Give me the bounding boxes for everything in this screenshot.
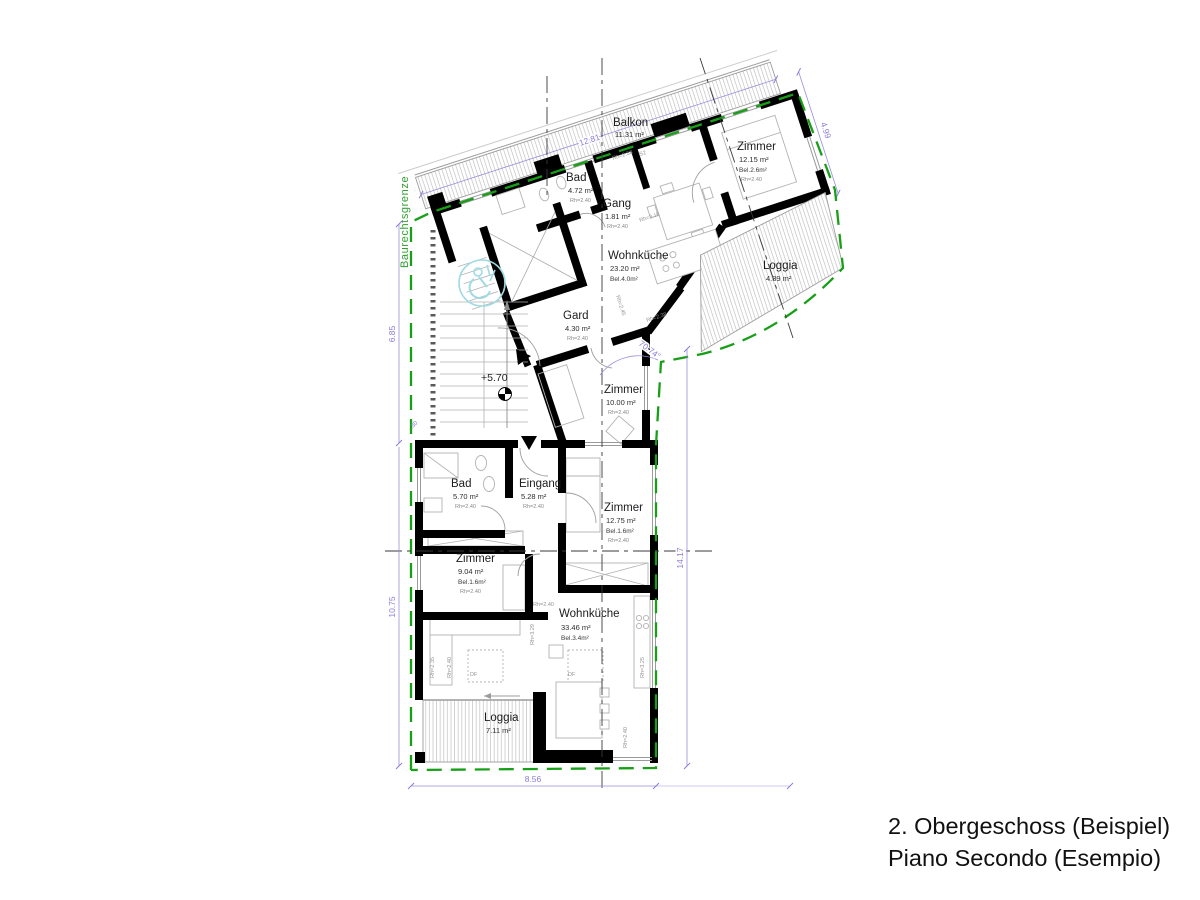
svg-text:4.39 m²: 4.39 m² (766, 274, 792, 283)
room-label-eingang: Eingang 5.28 m² Rh=2.40 (519, 478, 561, 510)
svg-text:Rh=2.40: Rh=2.40 (741, 177, 762, 183)
svg-text:4.72 m²: 4.72 m² (568, 186, 594, 195)
svg-text:DF: DF (470, 672, 478, 678)
svg-text:Rh=2.40: Rh=2.40 (447, 657, 453, 678)
room-label-zimmer-ost: Zimmer 12.75 m² Bel.1.6m² Rh=2.40 (604, 502, 643, 544)
room-label-gang: Gang 1.81 m² Rh=2.40 (603, 198, 631, 230)
svg-text:Rh=2.35: Rh=2.35 (430, 657, 436, 678)
svg-text:Wohnküche: Wohnküche (608, 250, 669, 262)
dim-wing-right: 4.99 (819, 121, 834, 140)
svg-text:Eingang: Eingang (519, 478, 561, 490)
svg-text:Gard: Gard (563, 310, 589, 322)
svg-text:Wohnküche: Wohnküche (559, 608, 620, 620)
svg-text:Rh=3.25: Rh=3.25 (640, 657, 646, 678)
svg-text:Rh=2.40: Rh=2.40 (608, 538, 629, 544)
svg-text:DF: DF (568, 672, 576, 678)
svg-text:33.46 m²: 33.46 m² (561, 623, 591, 632)
svg-text:Rh=2.40: Rh=2.40 (567, 336, 588, 342)
svg-text:Bad: Bad (566, 172, 586, 184)
dim-left-upper: 6.85 (387, 325, 397, 342)
room-label-wohnkueche-ug: Wohnküche 33.46 m² Bel.3.4m² (559, 608, 620, 642)
svg-text:4.30 m²: 4.30 m² (565, 324, 591, 333)
dim-right: 14.17 (675, 547, 685, 569)
svg-text:Rh=2.40: Rh=2.40 (455, 504, 476, 510)
plan-title-italian: Piano Secondo (Esempio) (888, 845, 1161, 871)
svg-text:Zimmer: Zimmer (456, 553, 495, 565)
svg-text:Bel.1.6m²: Bel.1.6m² (458, 579, 487, 586)
svg-text:Bel.4.0m²: Bel.4.0m² (610, 276, 639, 283)
junction-walls (498, 288, 681, 444)
svg-text:Balkon: Balkon (613, 117, 648, 129)
svg-text:12.75 m²: 12.75 m² (606, 516, 636, 525)
svg-text:S2: S2 (639, 150, 647, 158)
svg-text:Rh=2.40: Rh=2.40 (460, 589, 481, 595)
floor-plan-canvas: 12.81 (0, 0, 1200, 900)
svg-text:5.70 m²: 5.70 m² (453, 492, 479, 501)
entrance-arrow (521, 436, 537, 450)
lower-loggia-deck (423, 700, 545, 762)
svg-text:Bel.1.6m²: Bel.1.6m² (606, 528, 635, 535)
svg-text:Rh=2.40: Rh=2.40 (607, 224, 628, 230)
title-block: 2. Obergeschoss (Beispiel) Piano Secondo… (888, 813, 1170, 871)
svg-text:+5.70: +5.70 (481, 372, 508, 384)
plan-title-german: 2. Obergeschoss (Beispiel) (888, 813, 1170, 839)
svg-text:5.28 m²: 5.28 m² (521, 492, 547, 501)
svg-text:Bad: Bad (451, 478, 471, 490)
svg-text:Rh=2.40: Rh=2.40 (570, 198, 591, 204)
room-label-zimmer-mitte: Zimmer 10.00 m² Rh=2.40 (604, 384, 643, 416)
svg-text:Zimmer: Zimmer (604, 502, 643, 514)
svg-text:Loggia: Loggia (484, 712, 519, 724)
room-label-balkon: Balkon 11.31 m² (613, 117, 648, 139)
svg-text:Bel.2.6m²: Bel.2.6m² (739, 167, 768, 174)
svg-text:Loggia: Loggia (763, 260, 798, 272)
svg-text:Rh=2.45: Rh=2.45 (614, 295, 626, 317)
svg-text:9.04 m²: 9.04 m² (458, 567, 484, 576)
svg-text:Zimmer: Zimmer (737, 141, 776, 153)
svg-text:1.81 m²: 1.81 m² (605, 212, 631, 221)
room-label-gard: Gard 4.30 m² Rh=2.40 (563, 310, 591, 342)
dim-bottom: 8.56 (525, 774, 542, 784)
room-label-zimmer-west: Zimmer 9.04 m² Bel.1.6m² Rh=2.40 (456, 553, 495, 595)
svg-text:Rh=2.40: Rh=2.40 (608, 410, 629, 416)
svg-text:Rh=2.40: Rh=2.40 (533, 602, 554, 608)
building-right-boundary (411, 93, 843, 770)
svg-text:Bel.3.4m²: Bel.3.4m² (561, 635, 590, 642)
svg-text:Rh=2.40: Rh=2.40 (523, 504, 544, 510)
room-label-bad-eg: Bad 5.70 m² Rh=2.40 (451, 478, 479, 510)
svg-text:12.15 m²: 12.15 m² (739, 155, 769, 164)
floor-plan-page: 12.81 (0, 0, 1200, 900)
svg-text:23.20 m²: 23.20 m² (610, 264, 640, 273)
svg-text:Rh=3.29: Rh=3.29 (530, 624, 536, 645)
upper-wing: 12.81 (398, 42, 883, 423)
svg-text:7.11 m²: 7.11 m² (486, 726, 511, 735)
svg-text:Rh=2.40: Rh=2.40 (623, 727, 629, 748)
svg-text:11.31 m²: 11.31 m² (615, 130, 645, 139)
svg-text:Gang: Gang (603, 198, 631, 210)
svg-text:10.00 m²: 10.00 m² (606, 398, 636, 407)
dim-left-lower: 10.75 (387, 596, 397, 618)
svg-text:Zimmer: Zimmer (604, 384, 643, 396)
